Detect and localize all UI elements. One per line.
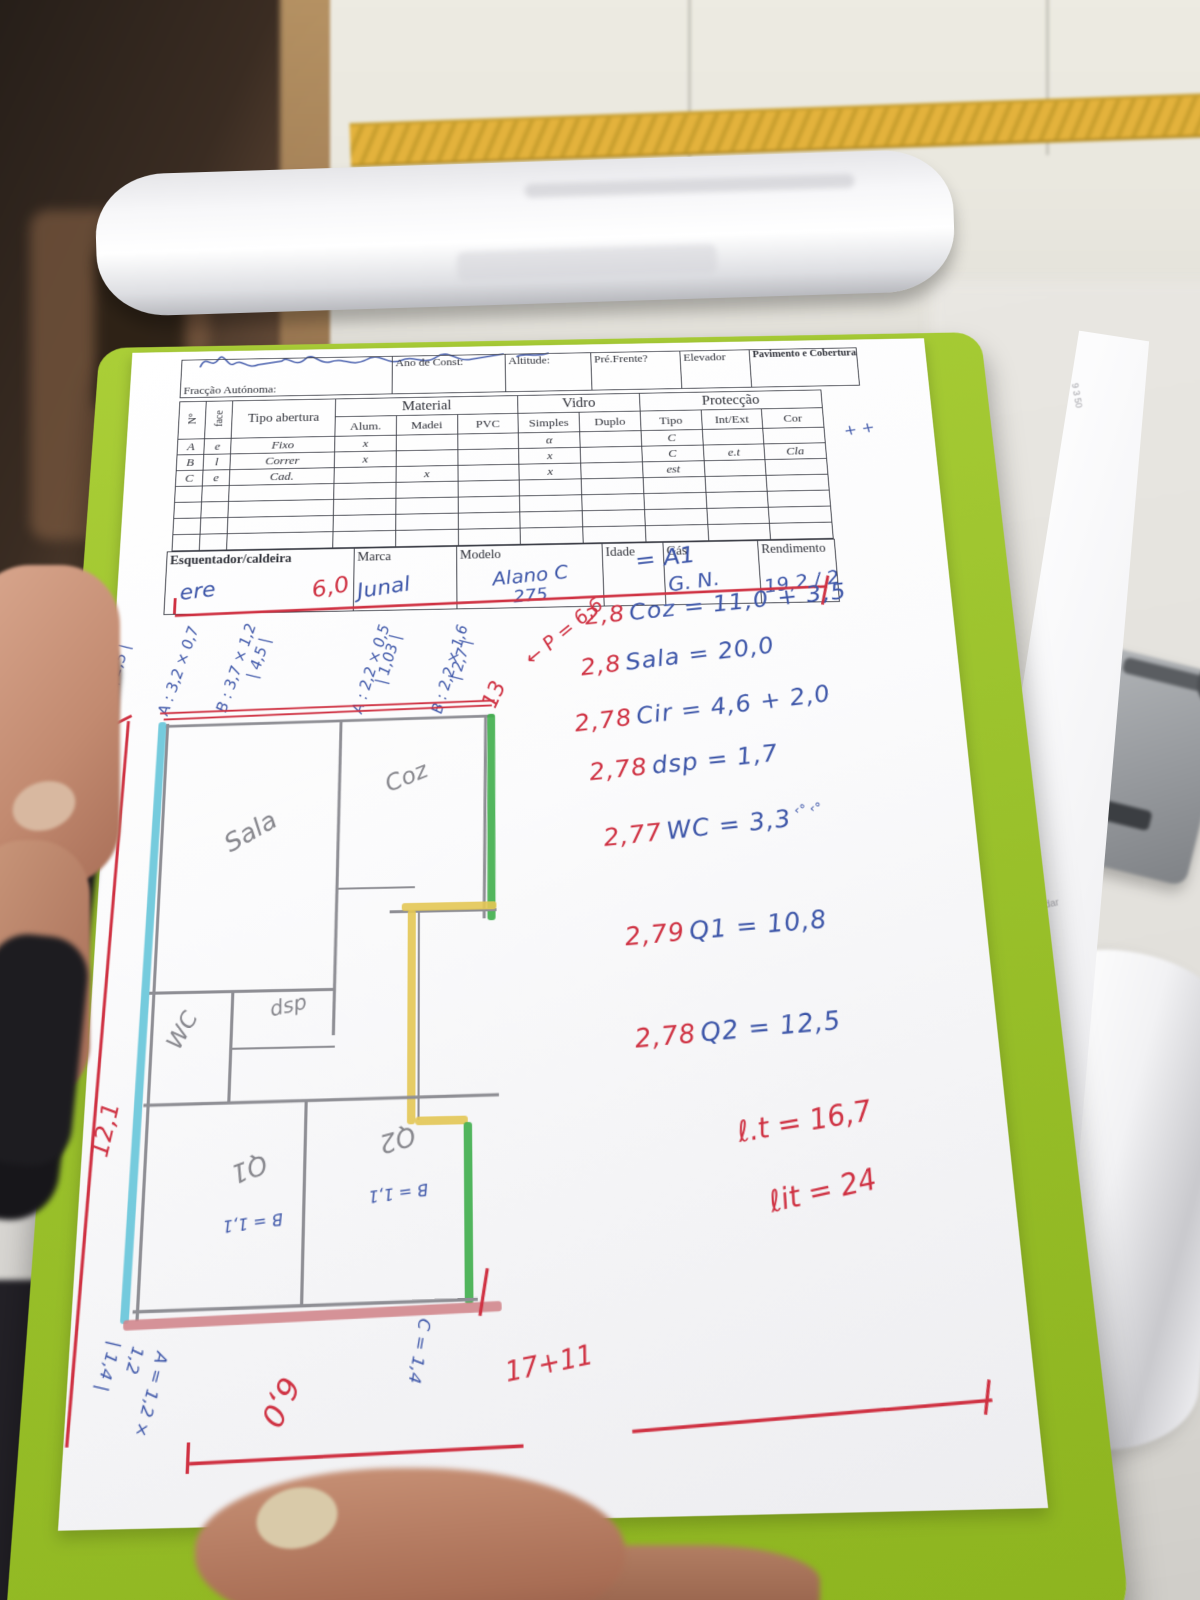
form-paper: Fracção Autónoma: Ano de Const: Altitude…	[58, 338, 1048, 1530]
field-fraccao: Fracção Autónoma:	[180, 356, 392, 397]
plan-wall-yellow-v	[407, 910, 416, 1125]
col-intext: Int/Ext	[701, 409, 763, 430]
dimension-tick	[186, 1442, 190, 1473]
hw-modelo-2: 275	[512, 585, 548, 608]
photo-scene: ambos guardar MobDedProdCart v.5 9 3 50 …	[0, 0, 1200, 1600]
calc-line: 2,78 Q2 = 12,5	[633, 1005, 843, 1054]
plan-wall-green-right	[487, 714, 495, 920]
dimension-line-bottom-left	[189, 1444, 523, 1465]
total-line: ℓit = 24	[766, 1162, 881, 1219]
field-pavimento: Pavimento e Cobertura	[749, 348, 859, 387]
dimension-line-bottom-right	[632, 1398, 992, 1432]
openings-table: N° face Tipo abertura Material Vidro Pro…	[172, 390, 834, 552]
plan-wall-green-right2	[464, 1122, 474, 1304]
calc-line: 2,8 Sala = 20,0	[579, 632, 777, 681]
calc-line: 2,78 Cir = 4,6 + 2,0	[573, 680, 833, 737]
col-simples: Simples	[518, 412, 580, 433]
room-label-q1: Q1	[228, 1148, 271, 1189]
room-label-wc: WC	[162, 1008, 204, 1054]
window-dim-bottom: A = 1,2 × 1,2 | 1,4 |	[80, 1339, 174, 1440]
room-dim-b11: B = 1,1	[368, 1179, 429, 1206]
plan-wall-q-divider	[300, 1102, 307, 1305]
field-altitude: Altitude:	[505, 353, 592, 392]
group-vidro: Vidro	[518, 393, 640, 413]
ghost-print-blur	[524, 174, 854, 198]
room-label-q2: Q2	[377, 1120, 419, 1159]
field-ano: Ano de Const:	[392, 354, 506, 394]
plan-wall-right	[483, 716, 487, 919]
room-label-coz: Coz	[381, 757, 431, 798]
col-madei: Madei	[396, 414, 457, 435]
plan-wall-dsp-bottom	[231, 1046, 335, 1050]
plan-wall-cyan	[120, 722, 167, 1324]
col-pvc: PVC	[457, 413, 518, 434]
col-alum: Alum.	[335, 416, 396, 437]
curled-page	[94, 149, 956, 318]
heater-col-marca: Marca	[354, 546, 457, 567]
plan-wall-rooms-top	[143, 1093, 499, 1106]
faint-print-digits: 9 3 50	[1070, 382, 1084, 408]
plan-wall-wc-top	[149, 988, 336, 994]
total-line: ℓ.t = 16,7	[735, 1094, 876, 1149]
col-cor: Cor	[762, 408, 824, 429]
col-tipo-abertura: Tipo abertura	[231, 399, 335, 438]
heater-col-rendimento: Rendimento	[757, 539, 835, 559]
hw-marca: Junal	[356, 573, 412, 603]
ghost-print-blur	[457, 244, 718, 282]
room-label-sala: Sala	[219, 806, 282, 858]
margin-plus-marks: + +	[842, 419, 876, 440]
calc-line: 2,77 WC = 3,3 ‹° ‹°	[602, 801, 825, 852]
col-numero: N°	[178, 401, 206, 439]
plan-wall-yellow-h2	[415, 1116, 467, 1126]
calc-line: 2,78 dsp = 1,7	[588, 739, 781, 786]
col-duplo: Duplo	[579, 411, 641, 432]
field-prefrente: Pré.Frente?	[591, 351, 682, 390]
window-dim: A : 3,2 × 0,7	[154, 625, 203, 717]
hw-esquentador: ere	[179, 578, 216, 605]
col-prot-tipo: Tipo	[640, 410, 702, 431]
plan-wall-corridor	[337, 886, 415, 890]
room-label-dsp: dsp	[268, 989, 309, 1021]
window-dim-c: C = 1,4	[404, 1317, 434, 1385]
col-face: face	[205, 401, 233, 439]
dimension-tick	[984, 1379, 990, 1414]
room-dim-b11: B = 1,1	[222, 1209, 283, 1237]
plan-wall-inset	[417, 912, 419, 1120]
dim-label-121: 12,1	[86, 1101, 125, 1160]
field-elevador: Elevador	[680, 350, 752, 389]
left-hand-fingers	[0, 565, 120, 885]
calc-line: 2,79 Q1 = 10,8	[623, 904, 829, 951]
floor-plan: Sala Coz WC dsp Q1 Q2 B = 1,1 B = 1,1	[114, 703, 515, 1333]
dim-label-60-bottom: 6,0	[253, 1371, 305, 1433]
dim-label-17-11: 17+11	[503, 1338, 596, 1389]
